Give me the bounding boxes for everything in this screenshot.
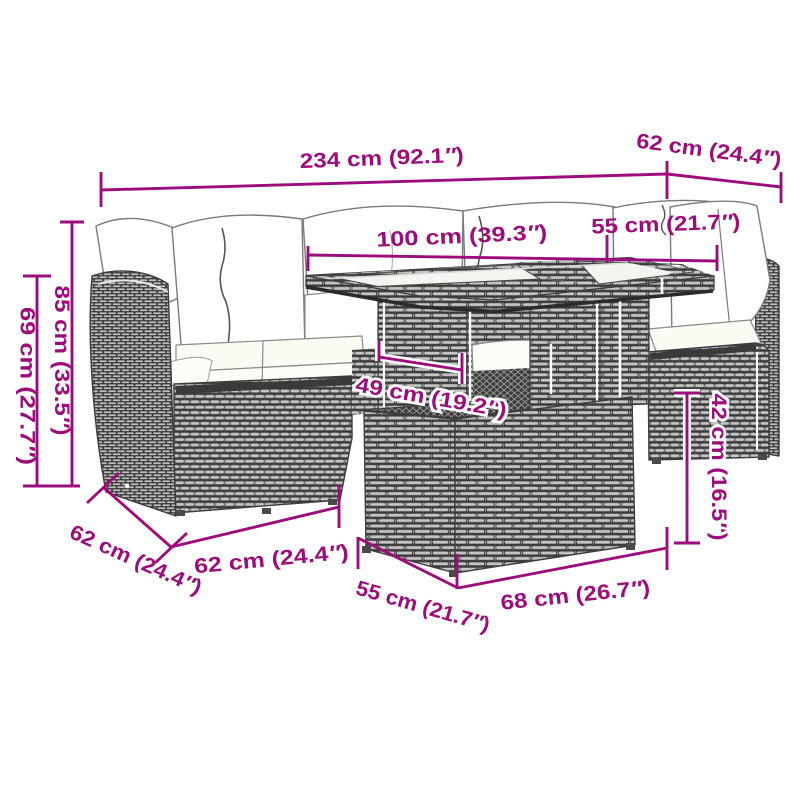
svg-text:69 cm (27.7″): 69 cm (27.7″)	[15, 307, 38, 465]
svg-text:85 cm (33.5″): 85 cm (33.5″)	[50, 286, 73, 436]
svg-text:42 cm (16.5″): 42 cm (16.5″)	[707, 394, 730, 541]
